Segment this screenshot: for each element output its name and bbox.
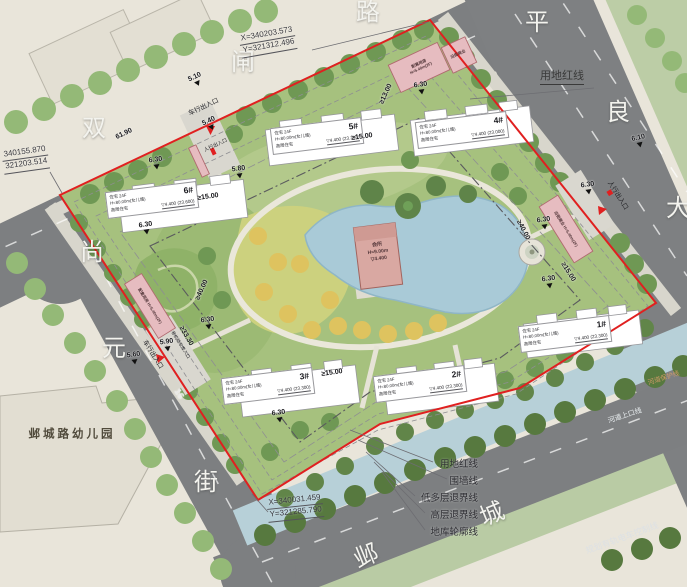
clubhouse-footprint: [353, 223, 402, 290]
site-plan: 路闸双平良大尚元街邺城 X=340203.573Y=321312.4963401…: [0, 0, 687, 587]
fountain-plaza: [519, 239, 545, 265]
kindergarten-footprint: [0, 386, 162, 532]
plan-graphics: [0, 0, 687, 587]
